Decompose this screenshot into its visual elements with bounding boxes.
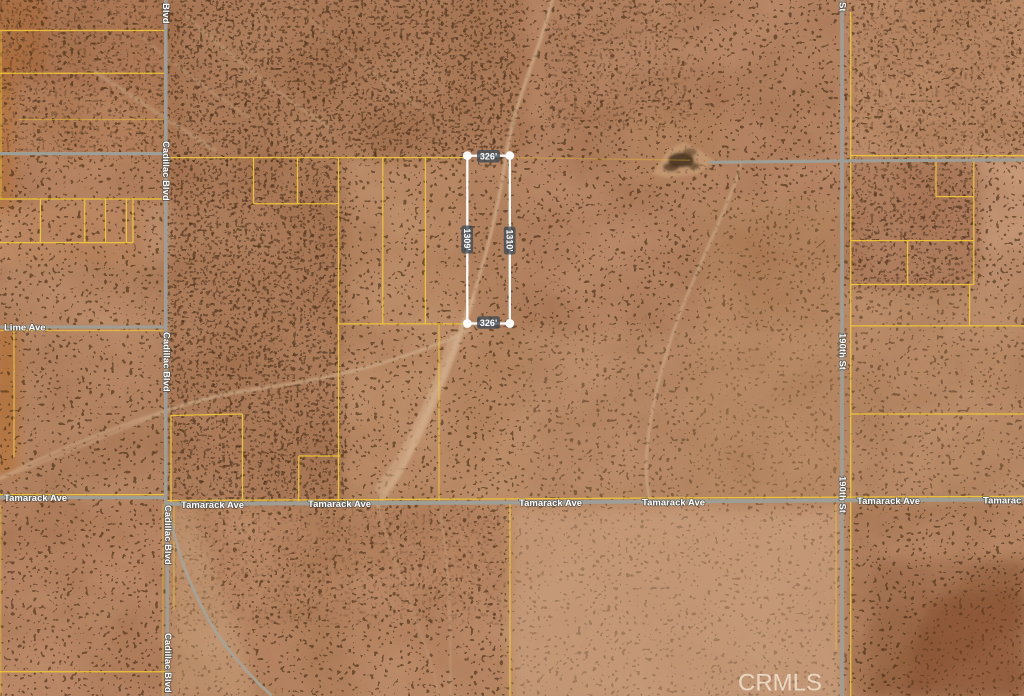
svg-text:St: St: [837, 2, 848, 12]
svg-text:Cadillac Blvd: Cadillac Blvd: [160, 332, 171, 392]
svg-text:Tamarack Ave: Tamarack Ave: [308, 499, 371, 510]
svg-text:1309': 1309': [462, 228, 472, 250]
svg-text:Tamarack Ave: Tamarack Ave: [4, 493, 67, 504]
svg-text:Tamarack Ave: Tamarack Ave: [181, 500, 244, 511]
svg-text:326': 326': [480, 152, 497, 162]
svg-text:Cadillac Blvd: Cadillac Blvd: [162, 505, 173, 565]
svg-text:Tamarack Ave: Tamarack Ave: [519, 498, 582, 509]
svg-text:190th St: 190th St: [837, 333, 848, 371]
svg-text:Tamarac: Tamarac: [983, 496, 1021, 507]
svg-text:Blvd: Blvd: [160, 3, 171, 24]
svg-text:326': 326': [480, 318, 497, 328]
svg-text:Cadillac Blvd: Cadillac Blvd: [162, 633, 173, 693]
svg-text:CRMLS: CRMLS: [738, 670, 822, 696]
svg-text:Tamarack Ave: Tamarack Ave: [642, 498, 705, 509]
svg-text:Lime Ave: Lime Ave: [4, 323, 46, 334]
svg-text:190th St: 190th St: [837, 476, 848, 514]
svg-text:Cadillac Blvd: Cadillac Blvd: [160, 141, 171, 201]
svg-text:Tamarack Ave: Tamarack Ave: [857, 496, 920, 507]
svg-text:1310': 1310': [504, 229, 514, 251]
